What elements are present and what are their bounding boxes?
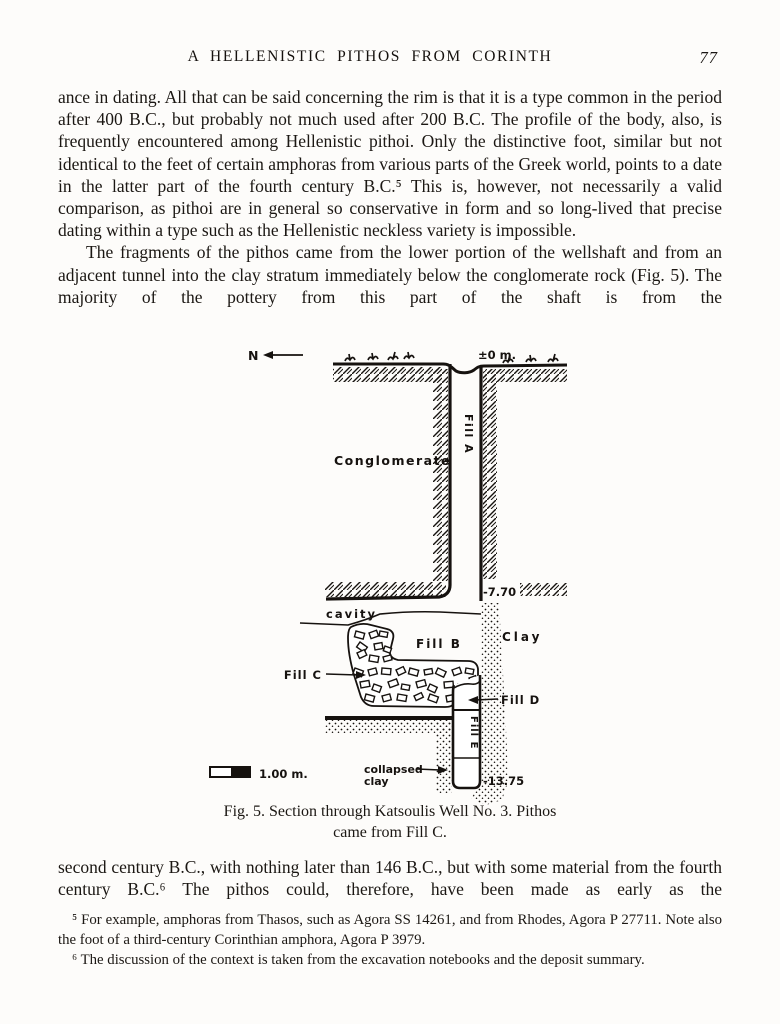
footnote-6: ⁶ The discussion of the context is taken…: [58, 950, 722, 970]
svg-text:N: N: [248, 348, 258, 363]
cavity-label: cavity: [326, 607, 377, 621]
page-number: 77: [700, 48, 719, 68]
figure-caption-line1: Fig. 5. Section through Katsoulis Well N…: [58, 801, 722, 822]
footnote-5: ⁵ For example, amphoras from Thasos, suc…: [58, 910, 722, 950]
running-title: A HELLENISTIC PITHOS FROM CORINTH: [58, 48, 682, 66]
depth-1375-label: -13.75: [483, 774, 524, 788]
figure-caption-line2: came from Fill C.: [58, 822, 722, 843]
datum-label: ±0 m.: [478, 348, 516, 362]
north-arrow: N: [248, 348, 303, 363]
paragraph-second-century: second century B.C., with nothing later …: [58, 856, 722, 900]
paragraph-fragments: The fragments of the pithos came from th…: [58, 241, 722, 308]
collapsed-clay-label-line2: clay: [364, 775, 389, 788]
page-header: A HELLENISTIC PITHOS FROM CORINTH 77: [58, 48, 722, 72]
fill-b-label: Fill B: [416, 637, 462, 651]
figure-caption: Fig. 5. Section through Katsoulis Well N…: [58, 801, 722, 843]
depth-770-label: -7.70: [483, 585, 516, 599]
fill-d-label: Fill D: [501, 693, 540, 707]
figure-5-section-drawing: N 1.00 m. ±0 m. Conglomerate: [190, 338, 590, 808]
grass-tufts: [345, 352, 558, 363]
fill-e-label: Fill E: [468, 716, 479, 749]
scanned-paper-page: A HELLENISTIC PITHOS FROM CORINTH 77 anc…: [0, 0, 780, 1024]
body-text-lower: second century B.C., with nothing later …: [58, 856, 722, 900]
scale-label: 1.00 m.: [259, 767, 308, 781]
conglomerate-hatch: [325, 367, 567, 597]
fill-c-label: Fill C: [284, 668, 322, 682]
conglomerate-label: Conglomerate: [334, 453, 451, 468]
well-section-svg: N 1.00 m. ±0 m. Conglomerate: [190, 338, 590, 808]
fill-a-label: Fill A: [462, 414, 475, 454]
footnotes: ⁵ For example, amphoras from Thasos, suc…: [58, 910, 722, 970]
scale-bar: 1.00 m.: [210, 767, 308, 781]
paragraph-dating: ance in dating. All that can be said con…: [58, 86, 722, 241]
body-text-upper: ance in dating. All that can be said con…: [58, 86, 722, 308]
clay-label: Clay: [502, 630, 542, 644]
well-shaft-walls: [326, 364, 481, 601]
